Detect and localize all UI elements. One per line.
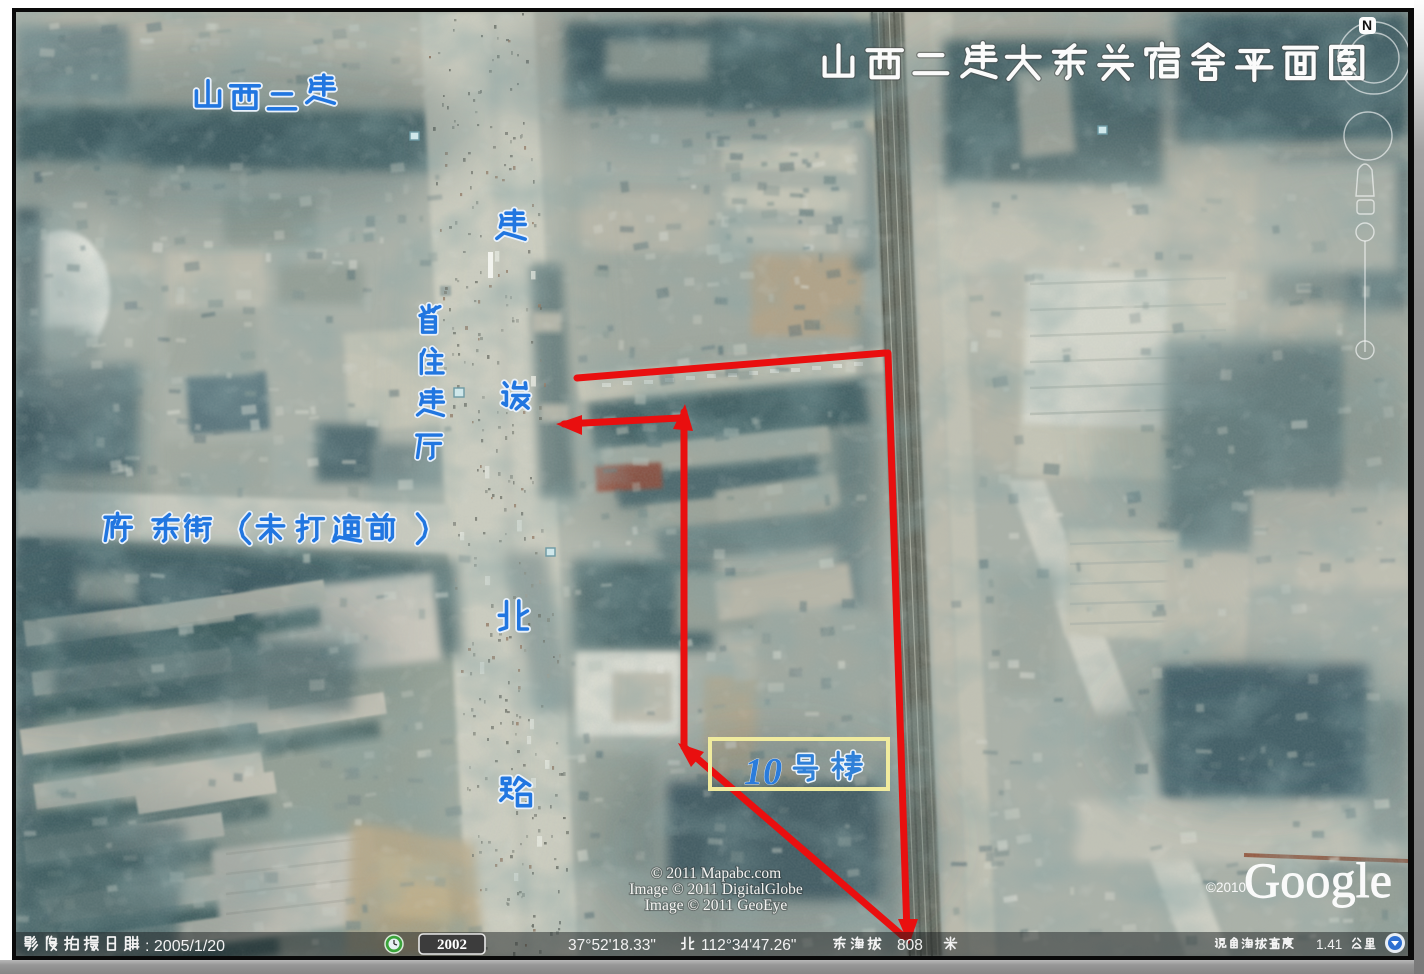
svg-text:Image © 2011 DigitalGlobe: Image © 2011 DigitalGlobe bbox=[629, 881, 803, 898]
svg-text:1.41: 1.41 bbox=[1316, 937, 1342, 952]
svg-text:©2010: ©2010 bbox=[1206, 880, 1246, 895]
svg-text:Image © 2011 GeoEye: Image © 2011 GeoEye bbox=[645, 897, 788, 914]
svg-text:N: N bbox=[1362, 17, 1372, 33]
svg-text:2002: 2002 bbox=[437, 937, 467, 953]
svg-text:112°34'47.26": 112°34'47.26" bbox=[701, 937, 796, 954]
svg-text:: 2005/1/20: : 2005/1/20 bbox=[145, 938, 225, 955]
svg-text:10: 10 bbox=[744, 751, 782, 793]
svg-text:© 2011 Mapabc.com: © 2011 Mapabc.com bbox=[651, 865, 781, 882]
svg-text:808: 808 bbox=[897, 937, 923, 954]
svg-text:Google: Google bbox=[1244, 852, 1392, 908]
svg-text:37°52'18.33": 37°52'18.33" bbox=[568, 937, 656, 954]
